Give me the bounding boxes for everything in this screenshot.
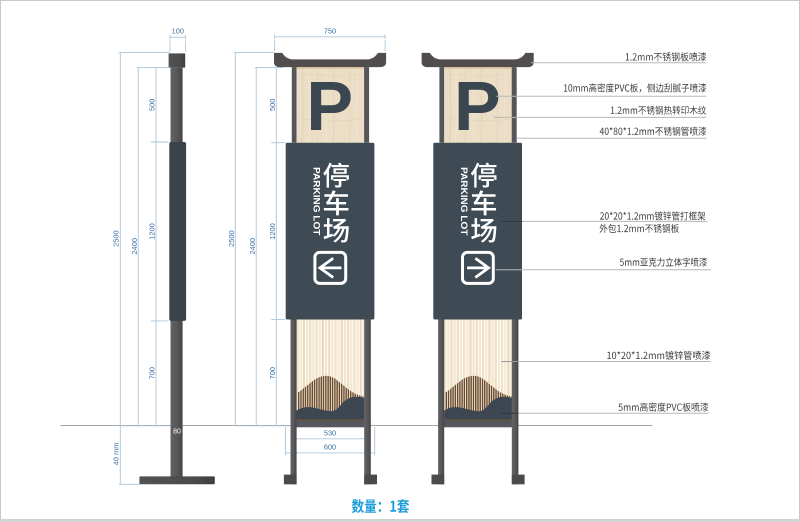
svg-text:1200: 1200 [268,223,277,239]
svg-text:P: P [454,67,501,145]
svg-text:2500: 2500 [227,230,236,246]
svg-text:2500: 2500 [112,230,121,246]
svg-text:P: P [306,67,353,145]
svg-text:700: 700 [148,367,157,379]
svg-text:500: 500 [268,99,277,111]
svg-text:700: 700 [268,367,277,379]
svg-text:80: 80 [173,429,181,436]
svg-text:2400: 2400 [130,238,139,254]
svg-text:2400: 2400 [248,238,257,254]
svg-text:750: 750 [324,27,336,36]
svg-text:100: 100 [172,27,184,36]
svg-text:40 mm: 40 mm [111,443,120,466]
svg-text:500: 500 [148,99,157,111]
svg-text:600: 600 [324,443,336,452]
svg-text:PARKING LOT: PARKING LOT [312,167,322,236]
svg-text:PARKING LOT: PARKING LOT [459,167,469,236]
svg-text:530: 530 [324,429,336,438]
svg-text:1200: 1200 [148,223,157,239]
